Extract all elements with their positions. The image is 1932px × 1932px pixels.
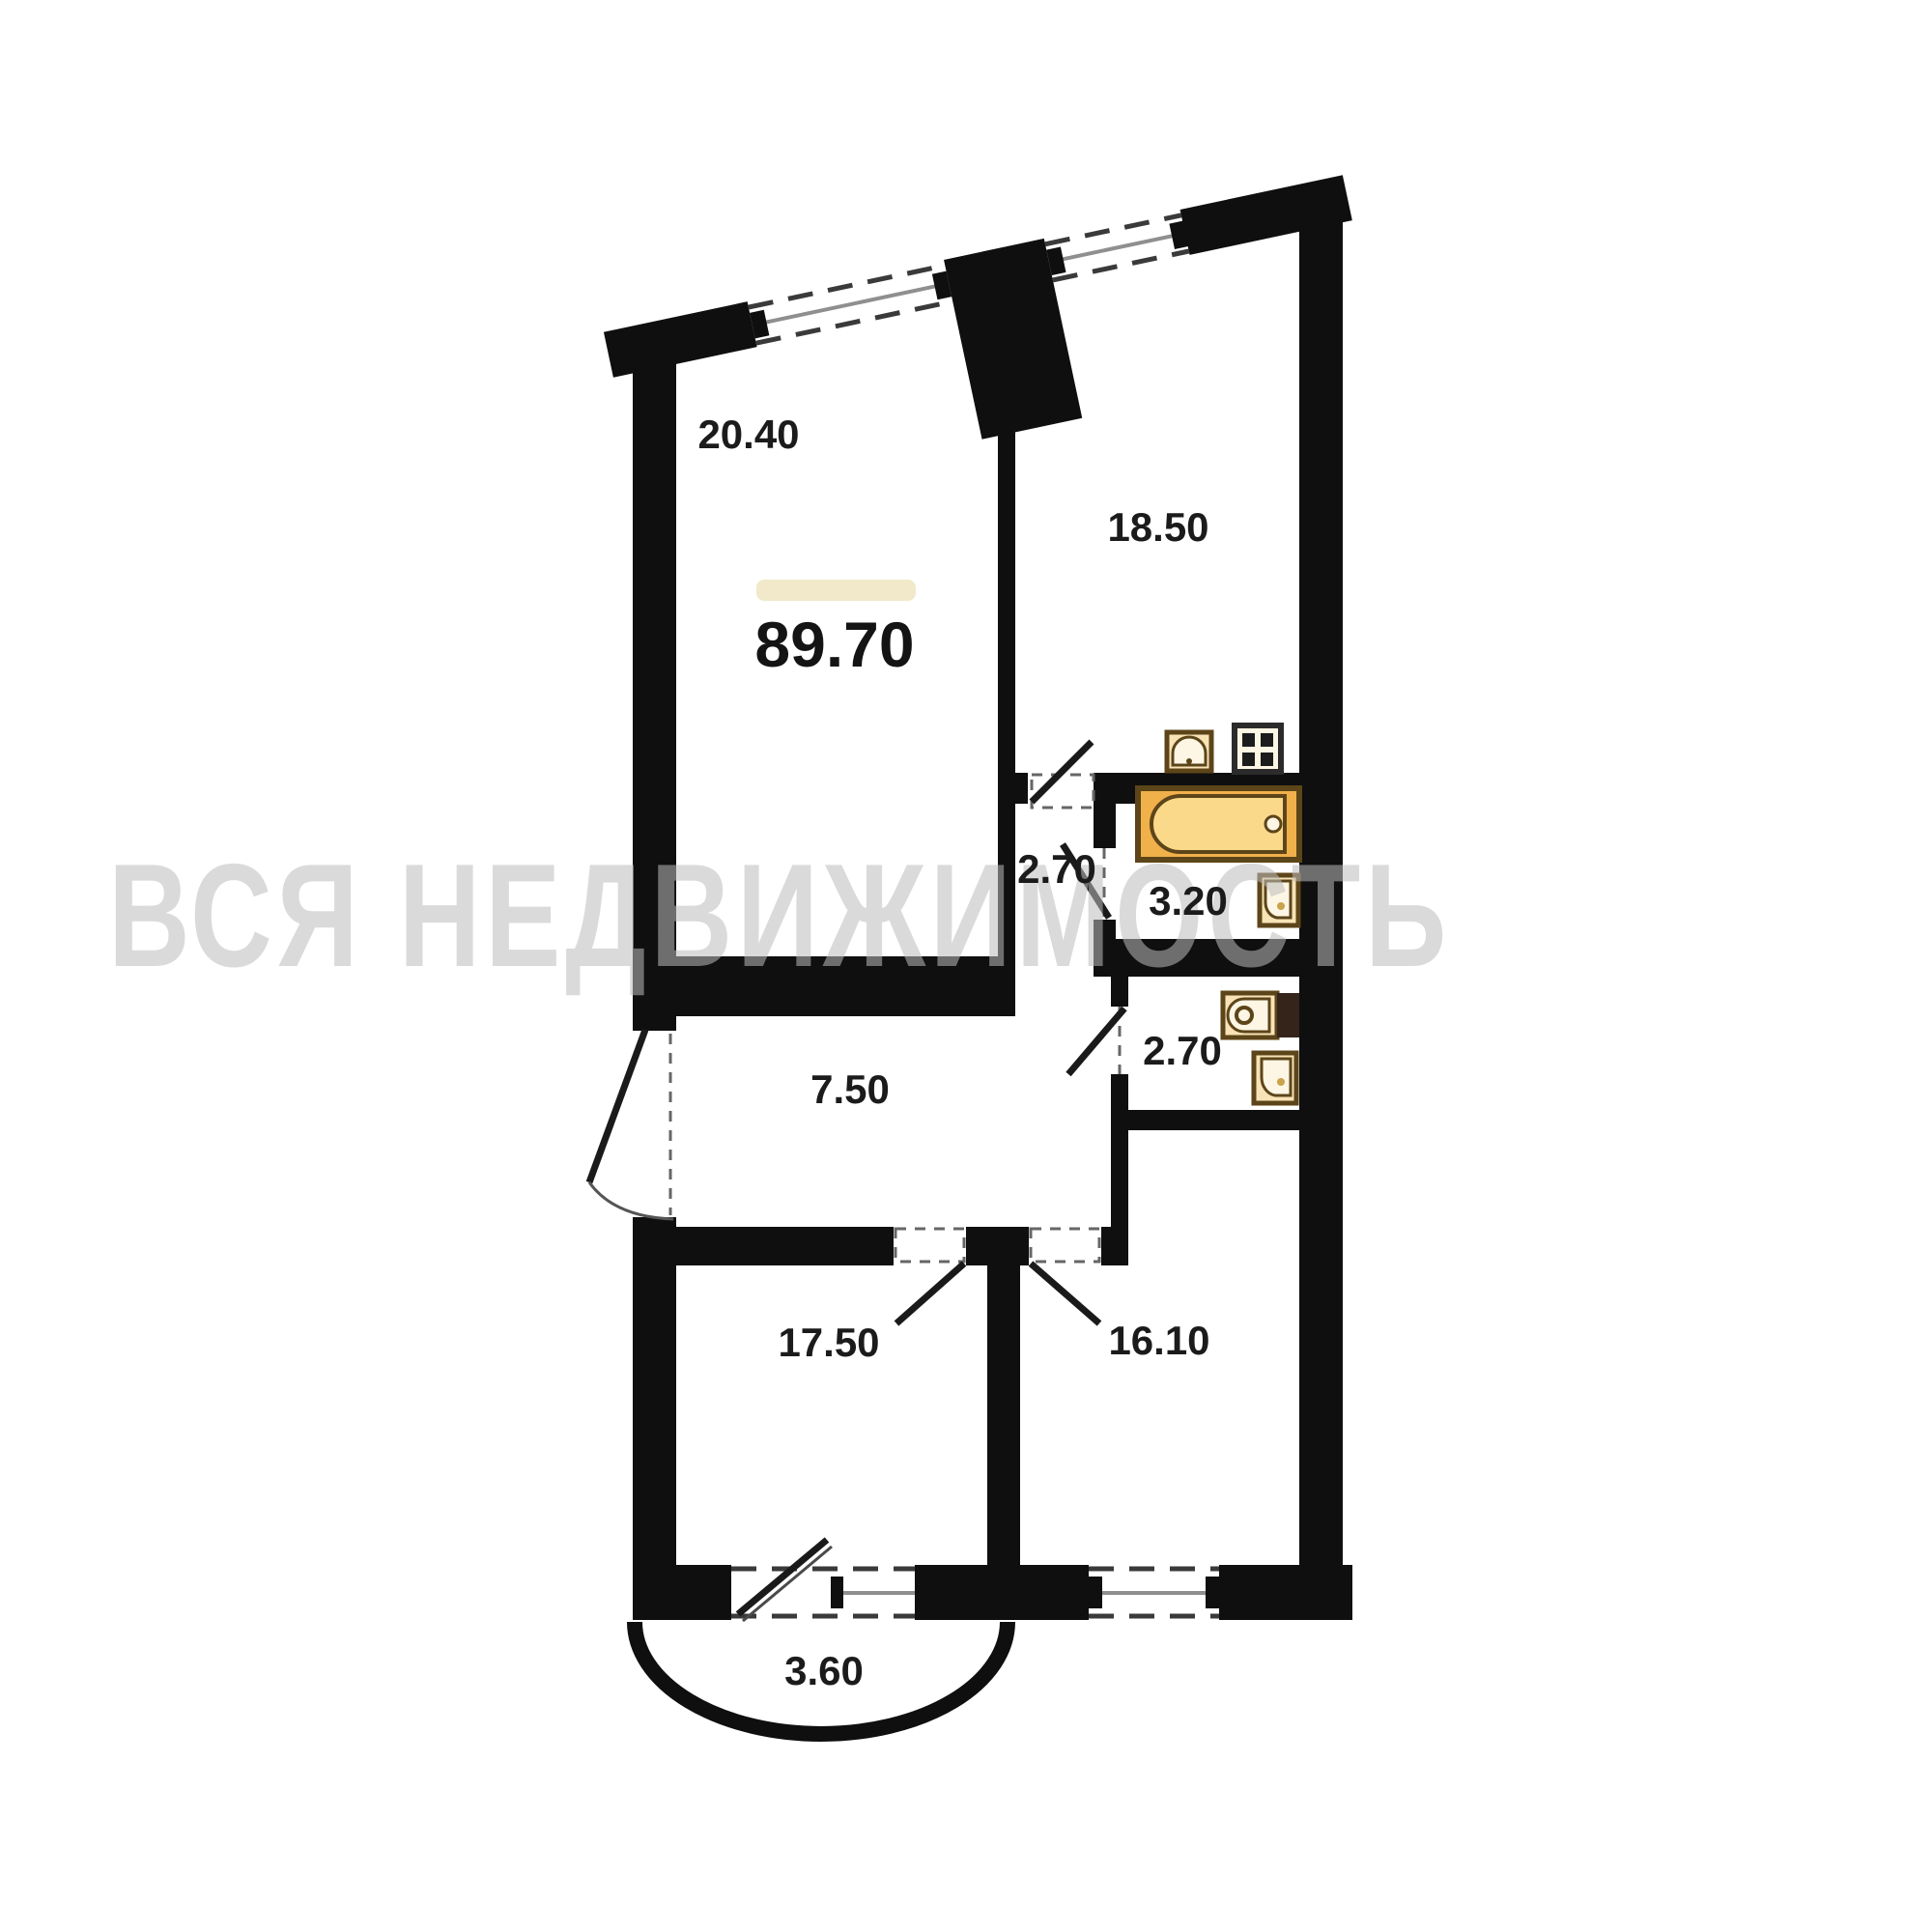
area-wc: 2.70 xyxy=(1143,1028,1222,1073)
wall-corridor-bottom-left xyxy=(676,1227,894,1265)
area-kitchen-living: 18.50 xyxy=(1107,504,1208,550)
area-inner-hall: 2.70 xyxy=(1017,846,1096,892)
wall-bottom-left xyxy=(633,1565,731,1620)
area-corridor: 7.50 xyxy=(810,1066,890,1112)
area-bathroom: 3.20 xyxy=(1149,878,1228,923)
wall-bottom-right xyxy=(1219,1565,1352,1620)
wall-bottom-middle xyxy=(915,1565,1089,1620)
wash-basin-icon xyxy=(1254,1053,1296,1103)
area-bedroom-1: 17.50 xyxy=(778,1320,879,1365)
floor-plan-svg: ВСЯ НЕДВИЖИМОСТЬ 89.70 20.40 18.50 2.70 … xyxy=(0,0,1932,1932)
wall-left-lower xyxy=(633,1217,676,1620)
wall-corridor-bottom-mid xyxy=(966,1227,1029,1265)
vent-shaft-icon xyxy=(1277,993,1299,1037)
area-balcony: 3.60 xyxy=(784,1648,864,1693)
wall-kitchen-stub xyxy=(1015,773,1028,804)
watermark-text: ВСЯ НЕДВИЖИМОСТЬ xyxy=(108,834,1451,998)
floor-plan-image: ВСЯ НЕДВИЖИМОСТЬ 89.70 20.40 18.50 2.70 … xyxy=(0,0,1932,1932)
total-area-highlight xyxy=(756,580,916,601)
wall-under-wc xyxy=(1111,1110,1343,1130)
wall-corridor-bottom-right xyxy=(1101,1227,1128,1265)
kitchen-sink-icon xyxy=(1167,732,1211,771)
wall-divider-bedrooms xyxy=(987,1265,1020,1567)
total-area-label: 89.70 xyxy=(754,609,914,680)
toilet-icon xyxy=(1223,993,1277,1037)
area-living-room: 20.40 xyxy=(697,412,799,457)
area-bedroom-2: 16.10 xyxy=(1108,1318,1209,1363)
stove-icon xyxy=(1235,725,1281,772)
